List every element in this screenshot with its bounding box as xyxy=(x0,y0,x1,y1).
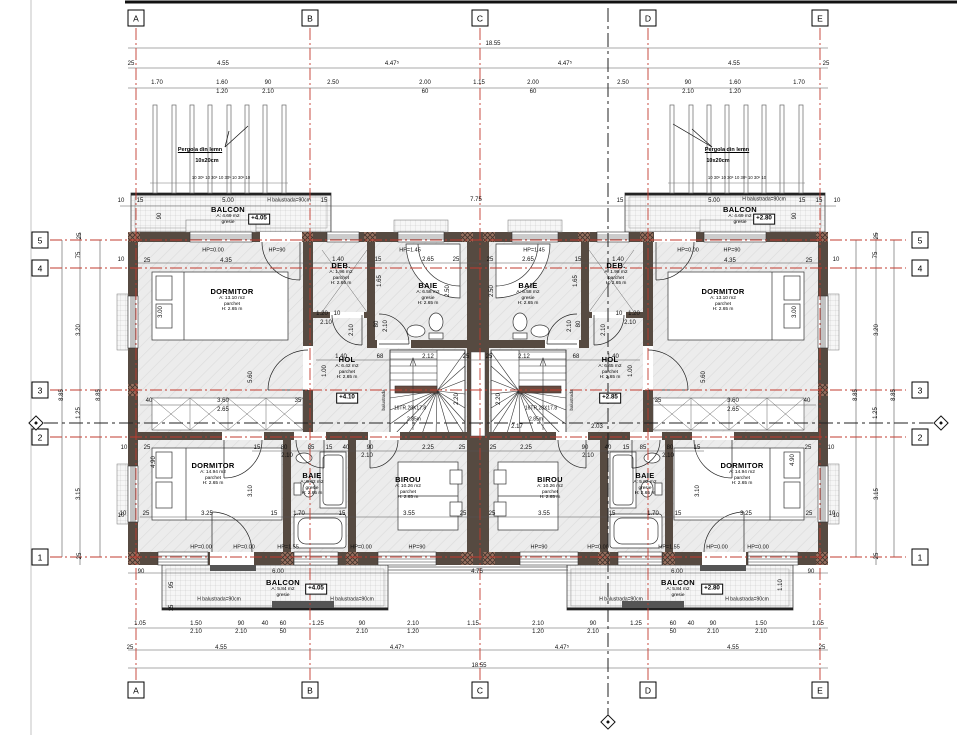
grid-marker-2: 2 xyxy=(912,429,929,446)
dim-label: 7.75 xyxy=(470,197,482,203)
dim-label: 25 xyxy=(127,645,134,651)
dim-label: H balustrada=90cm xyxy=(267,199,311,204)
dim-label: 15 xyxy=(137,198,144,204)
room-detail: A: 4.69 m2 xyxy=(211,214,245,219)
room-detail: H: 2.65 m xyxy=(395,495,421,500)
dim-label: 15 xyxy=(169,605,175,612)
dim-label: 40 xyxy=(688,621,695,627)
dim-label: HP=1.55 xyxy=(658,545,680,551)
grid-marker-B: B xyxy=(302,10,319,27)
room-label-balcon-top-left: BALCONA: 4.69 m2gresie xyxy=(211,206,245,225)
dim-label: H balustrada=90cm xyxy=(742,198,786,203)
dim-label: 2.10 xyxy=(532,621,544,627)
dim-label: 10 xyxy=(118,198,125,204)
dim-label: 2.10 xyxy=(407,621,419,627)
room-detail: A: 6.45 m2 xyxy=(598,364,621,369)
grid-marker-E: E xyxy=(812,10,829,27)
room-label-birou-right: BIROUA: 10.26 m2parchetH: 2.65 m xyxy=(537,476,563,500)
dim-label: 5.60 xyxy=(701,371,707,383)
room-detail: gresie xyxy=(211,220,245,225)
dim-label: H balustrada=90cm xyxy=(330,598,374,603)
dim-label: 15 xyxy=(617,198,624,204)
dim-label: 90 xyxy=(157,213,163,220)
dim-label: 90 xyxy=(265,80,272,86)
dim-label: 40 xyxy=(804,398,811,404)
dim-label: 2.10 xyxy=(356,629,368,635)
dim-label: 15 xyxy=(271,511,278,517)
dim-label: 2.20 xyxy=(496,393,502,405)
dim-label: 8.85 xyxy=(853,389,859,401)
dim-label: 2.10 xyxy=(281,453,293,459)
dim-label: 1.25 xyxy=(312,621,324,627)
dim-label: HP=1.45 xyxy=(399,248,421,254)
dim-label: 2.10 xyxy=(190,629,202,635)
room-detail: A: 5.02 m2 xyxy=(633,480,656,485)
grid-marker-A: A xyxy=(128,682,145,699)
dim-label: 1.20 xyxy=(216,89,228,95)
dim-label: 8.85 xyxy=(891,389,897,401)
dim-label: 2.10 xyxy=(235,629,247,635)
dim-label: 1.25 xyxy=(873,407,879,419)
dim-label: 2.17 xyxy=(511,424,523,430)
dim-label: 75 xyxy=(873,252,879,259)
dim-label: 15 xyxy=(694,445,701,451)
dim-label: 1.60 xyxy=(216,80,228,86)
dim-label: 1.00 xyxy=(628,365,634,377)
dim-label: 1.20 xyxy=(316,311,328,317)
dim-label: balustrada xyxy=(570,389,575,410)
dim-label: 2.10 xyxy=(707,629,719,635)
dim-label: 90 xyxy=(710,621,717,627)
dim-label: 80 xyxy=(667,445,674,451)
dim-label: 15 xyxy=(339,511,346,517)
dim-label: HP=1.45 xyxy=(523,248,545,254)
dim-label: 3.55 xyxy=(403,511,415,517)
section-marker xyxy=(600,714,616,730)
room-label-dormitor-bottom-right: DORMITORA: 14.94 m2parchetH: 2.65 m xyxy=(720,462,763,486)
dim-label: 60 xyxy=(422,89,429,95)
dim-label: 25 xyxy=(143,511,150,517)
grid-marker-4: 4 xyxy=(912,260,929,277)
dim-label: 90 xyxy=(238,621,245,627)
room-detail: A: 5.02 m2 xyxy=(300,480,323,485)
room-label-dormitor-top-right: DORMITORA: 13.10 m2parchetH: 2.65 m xyxy=(701,288,744,312)
grid-marker-D: D xyxy=(640,682,657,699)
dim-label: 3.25 xyxy=(201,511,213,517)
room-detail: gresie xyxy=(661,593,695,598)
dim-label: 5.00 xyxy=(222,198,234,204)
room-label-deb-right: DEB.A: 1.96 m2parchetH: 2.65 m xyxy=(604,262,627,286)
room-label-baie-top-left: BAIEA: 6.58 m2gresieH: 2.65 m xyxy=(416,282,439,306)
dim-label: 6.00 xyxy=(272,569,284,575)
dim-label: 25 xyxy=(874,553,880,560)
dim-label: HP=0.00 xyxy=(350,545,372,551)
grid-marker-3: 3 xyxy=(912,382,929,399)
dim-label: HP=0.00 xyxy=(747,545,769,551)
room-detail: H: 2.65 m xyxy=(329,281,352,286)
dim-label: 10 xyxy=(828,445,835,451)
dim-label: 90 xyxy=(138,569,145,575)
room-detail: gresie xyxy=(266,593,300,598)
grid-marker-C: C xyxy=(472,682,489,699)
dim-label: 10 xyxy=(833,257,840,263)
dim-label: 2.12 xyxy=(422,354,434,360)
dim-label: 4.55 xyxy=(727,645,739,651)
dim-label: 90 xyxy=(808,569,815,575)
dim-label: 1.20 xyxy=(407,629,419,635)
dim-label: 80 xyxy=(576,321,582,328)
room-detail: H: 2.65 m xyxy=(633,491,656,496)
room-label-hol-left: HOLA: 6.42 m2parchetH: 2.65 m xyxy=(335,356,358,380)
dim-label: 15 xyxy=(609,511,616,517)
dim-label: 25 xyxy=(490,445,497,451)
dim-label: 2.10 xyxy=(383,320,389,332)
room-detail: A: 10.26 m2 xyxy=(537,484,563,489)
dim-label: 15 xyxy=(675,511,682,517)
dim-label: 4.75 xyxy=(471,569,483,575)
dim-label: 1.70 xyxy=(151,80,163,86)
dim-label: 25 xyxy=(823,61,830,67)
room-label-balcon-top-right: BALCONA: 4.69 m2gresie xyxy=(723,206,757,225)
dim-label: 95 xyxy=(169,582,175,589)
dim-label: 25 xyxy=(487,257,494,263)
room-detail: A: 1.96 m2 xyxy=(329,270,352,275)
dim-label: 2.10 xyxy=(262,89,274,95)
dim-label: 2.03 xyxy=(591,424,603,430)
dim-label: 40 xyxy=(262,621,269,627)
dim-label: 90 xyxy=(359,621,366,627)
dim-label: 90 xyxy=(367,445,374,451)
dim-label: 4.35 xyxy=(724,258,736,264)
room-label-deb-left: DEB.A: 1.96 m2parchetH: 2.65 m xyxy=(329,262,352,286)
section-marker-dot xyxy=(939,420,943,424)
dim-label: 4.47⁵ xyxy=(558,61,572,67)
dim-label: 2.25 xyxy=(520,445,532,451)
dim-label: 68 xyxy=(377,354,384,360)
dim-label: 4.47⁵ xyxy=(555,645,569,651)
dim-label: 3.20 xyxy=(874,324,880,336)
dim-label: 10 30⁵ 10 30⁵ 10 30⁵ 10 30⁵ 10 xyxy=(708,176,766,180)
dim-label: 50 xyxy=(670,629,677,635)
section-marker xyxy=(933,415,949,431)
dim-label: 2.85m xyxy=(407,418,421,423)
room-detail: A: 5.84 m2 xyxy=(266,587,300,592)
grid-marker-4: 4 xyxy=(32,260,49,277)
room-detail: A: 5.84 m2 xyxy=(661,587,695,592)
room-label-dormitor-top-left: DORMITORA: 13.10 m2parchetH: 2.65 m xyxy=(210,288,253,312)
dim-label: 1.05 xyxy=(812,621,824,627)
dim-label: 1.65 xyxy=(377,275,383,287)
dim-label: 85 xyxy=(308,445,315,451)
room-label-balcon-bottom-right: BALCONA: 5.84 m2gresie xyxy=(661,579,695,598)
dim-label: 1.60 xyxy=(729,80,741,86)
grid-marker-2: 2 xyxy=(32,429,49,446)
dim-label: HP=90 xyxy=(724,248,741,254)
dim-label: 2.85m xyxy=(529,418,543,423)
dim-label: 10 xyxy=(118,513,125,519)
dim-label: 15 xyxy=(254,445,261,451)
room-detail: A: 4.69 m2 xyxy=(723,214,757,219)
dim-label: 90 xyxy=(792,213,798,220)
dim-label: 25 xyxy=(486,354,493,360)
room-detail: H: 2.65 m xyxy=(604,281,627,286)
room-label-balcon-bottom-left: BALCONA: 5.84 m2gresie xyxy=(266,579,300,598)
dim-label: 15 xyxy=(575,257,582,263)
room-label-baie-top-right: BAIEA: 6.58 m2gresieH: 2.65 m xyxy=(516,282,539,306)
dim-label: HP=0.00 xyxy=(233,545,255,551)
dim-label: 2.25 xyxy=(422,445,434,451)
grid-marker-C: C xyxy=(472,10,489,27)
grid-marker-B: B xyxy=(302,682,319,699)
dim-label: 3.10 xyxy=(695,485,701,497)
dim-label: 2.10 xyxy=(567,320,573,332)
dim-label: 40 xyxy=(146,398,153,404)
dim-label: 35 xyxy=(295,398,302,404)
dim-label: 75 xyxy=(76,252,82,259)
dim-label: HP=0.00 xyxy=(190,545,212,551)
dim-label: 2.20 xyxy=(454,393,460,405)
grid-marker-1: 1 xyxy=(912,549,929,566)
grid-marker-3: 3 xyxy=(32,382,49,399)
dim-label: 18.55 xyxy=(471,663,486,669)
dim-label: HP=90 xyxy=(409,545,426,551)
dim-label: 1.20 xyxy=(628,311,640,317)
dim-label: 80 xyxy=(281,445,288,451)
elevation-marker: +4.05 xyxy=(248,214,270,225)
grid-marker-A: A xyxy=(128,10,145,27)
dim-label: 25 xyxy=(819,645,826,651)
dim-label: balustrada xyxy=(382,389,387,410)
room-detail: H: 2.65 m xyxy=(300,491,323,496)
dim-label: 3.15 xyxy=(76,488,82,500)
dim-label: 25 xyxy=(874,233,880,240)
dim-label: HP=0.00 xyxy=(677,248,699,254)
dim-label: 60 xyxy=(530,89,537,95)
dim-label: 2.10 xyxy=(624,320,636,326)
room-detail: H: 2.65 m xyxy=(416,301,439,306)
dim-label: 25 xyxy=(459,445,466,451)
dim-label: 25 xyxy=(806,258,813,264)
dim-label: 1.50 xyxy=(190,621,202,627)
grid-marker-1: 1 xyxy=(32,549,49,566)
dim-label: 90 xyxy=(590,621,597,627)
dim-label: 80 xyxy=(374,321,380,328)
room-detail: H: 2.65 m xyxy=(537,495,563,500)
dim-label: 35 xyxy=(655,398,662,404)
room-label-birou-left: BIROUA: 10.26 m2parchetH: 2.65 m xyxy=(395,476,421,500)
annotation-layer: 18.55254.554.47⁵4.47⁵4.55251.701.601.209… xyxy=(0,0,957,735)
grid-marker-5: 5 xyxy=(32,232,49,249)
dim-label: 2.12 xyxy=(518,354,530,360)
room-detail: A: 6.58 m2 xyxy=(416,290,439,295)
dim-label: 1.70 xyxy=(647,511,659,517)
room-detail: A: 10.26 m2 xyxy=(395,484,421,489)
dim-label: 3.55 xyxy=(538,511,550,517)
room-detail: A: 6.42 m2 xyxy=(335,364,358,369)
dim-label: 4.47⁵ xyxy=(385,61,399,67)
dim-label: H balustrada=90cm xyxy=(197,598,241,603)
dim-label: 25 xyxy=(460,511,467,517)
dim-label: HP=90 xyxy=(269,248,286,254)
dim-label: 1.50 xyxy=(755,621,767,627)
dim-label: 3.60 xyxy=(727,398,739,404)
dim-label: 4.47⁵ xyxy=(390,645,404,651)
dim-label: 2.50 xyxy=(445,285,451,297)
dim-label: 2.10 xyxy=(662,453,674,459)
dim-label: 6.00 xyxy=(671,569,683,575)
dim-label: 1.05 xyxy=(134,621,146,627)
dim-label: 2.10 xyxy=(349,324,355,336)
dim-label: 2.65 xyxy=(522,257,534,263)
dim-label: 25 xyxy=(77,233,83,240)
elevation-marker: +4.05 xyxy=(305,584,327,595)
dim-label: 25 xyxy=(805,445,812,451)
room-detail: A: 1.96 m2 xyxy=(604,270,627,275)
dim-label: 2.50 xyxy=(327,80,339,86)
dim-label: 3.00 xyxy=(158,306,164,318)
dim-label: HP=0.00 xyxy=(202,248,224,254)
dim-label: 1.25 xyxy=(630,621,642,627)
dim-label: 10 xyxy=(118,257,125,263)
dim-label: H balustrada=90cm xyxy=(725,598,769,603)
note-label: 10x20cm xyxy=(706,158,729,164)
elevation-marker: +2.80 xyxy=(753,214,775,225)
dim-label: 3.60 xyxy=(217,398,229,404)
room-detail: gresie xyxy=(723,220,757,225)
dim-label: 2.10 xyxy=(587,629,599,635)
dim-label: 2.50 xyxy=(617,80,629,86)
room-label-baie-bottom-right: BAIEA: 5.02 m2gresieH: 2.65 m xyxy=(633,472,656,496)
dim-label: 10 30⁵ 10 30⁵ 10 30⁵ 10 30⁵ 10 xyxy=(192,176,250,180)
dim-label: 10 xyxy=(833,513,840,519)
room-label-baie-bottom-left: BAIEA: 5.02 m2gresieH: 2.65 m xyxy=(300,472,323,496)
dim-label: 15 xyxy=(375,257,382,263)
room-detail: H: 2.65 m xyxy=(210,307,253,312)
dim-label: 2.10 xyxy=(601,324,607,336)
dim-label: 1.20 xyxy=(729,89,741,95)
dim-label: HP=0.00 xyxy=(587,545,609,551)
dim-label: HP=1.55 xyxy=(277,545,299,551)
note-label: Pergola din lemn xyxy=(705,147,749,153)
dim-label: 40 xyxy=(605,445,612,451)
dim-label: H balustrada=90cm xyxy=(599,598,643,603)
dim-label: 90 xyxy=(582,445,589,451)
dim-label: 15 xyxy=(799,198,806,204)
dim-label: 4.90 xyxy=(790,454,796,466)
dim-label: 2.65 xyxy=(217,407,229,413)
dim-label: 4.35 xyxy=(220,258,232,264)
section-marker-dot xyxy=(606,719,610,723)
dim-label: 8.85 xyxy=(96,389,102,401)
dim-label: 15 xyxy=(816,198,823,204)
dim-label: 1.00 xyxy=(322,365,328,377)
dim-label: 1.70 xyxy=(793,80,805,86)
section-marker-dot xyxy=(34,420,38,424)
dim-label: 25 xyxy=(489,511,496,517)
dim-label: 1.10 xyxy=(778,579,784,591)
dim-label: 90 xyxy=(685,80,692,86)
dim-label: 4.90 xyxy=(151,456,157,468)
dim-label: 4.55 xyxy=(728,61,740,67)
room-detail: H: 2.65 m xyxy=(191,481,234,486)
elevation-marker: +2.85 xyxy=(599,393,621,404)
dim-label: 2.50 xyxy=(489,285,495,297)
dim-label: 25 xyxy=(806,511,813,517)
dim-label: 5.60 xyxy=(248,371,254,383)
dim-label: 2.65 xyxy=(727,407,739,413)
dim-label: 1.15 xyxy=(467,621,479,627)
dim-label: 3.15 xyxy=(874,488,880,500)
dim-label: 2.00 xyxy=(419,80,431,86)
dim-label: 8.85 xyxy=(59,389,65,401)
dim-label: 15 xyxy=(321,198,328,204)
dim-label: 2.10 xyxy=(755,629,767,635)
dim-label: 2.10 xyxy=(682,89,694,95)
room-detail: H: 2.65 m xyxy=(701,307,744,312)
dim-label: 3.10 xyxy=(248,485,254,497)
dim-label: 2.00 xyxy=(527,80,539,86)
dim-label: 2.10 xyxy=(582,453,594,459)
dim-label: HP=0.00 xyxy=(706,545,728,551)
dim-label: 10 xyxy=(616,311,623,317)
grid-marker-5: 5 xyxy=(912,232,929,249)
dim-label: 15 xyxy=(326,445,333,451)
note-label: 10x20cm xyxy=(195,158,218,164)
room-label-hol-right: HOLA: 6.45 m2parchetH: 2.65 m xyxy=(598,356,621,380)
dim-label: 25 xyxy=(463,354,470,360)
room-detail: H: 2.65 m xyxy=(720,481,763,486)
dim-label: 10 xyxy=(121,445,128,451)
dim-label: 1.65 xyxy=(573,275,579,287)
dim-label: 85 xyxy=(640,445,647,451)
dim-label: 25 xyxy=(144,445,151,451)
dim-label: 2.10 xyxy=(361,453,373,459)
dim-label: 50 xyxy=(280,629,287,635)
dim-label: 68 xyxy=(573,354,580,360)
dim-label: 40 xyxy=(343,445,350,451)
dim-label: 2.10 xyxy=(320,320,332,326)
dim-label: 3.00 xyxy=(792,306,798,318)
dim-label: 16TR.28X17.8 xyxy=(394,407,426,412)
dim-label: 1.25 xyxy=(76,407,82,419)
dim-label: HP=90 xyxy=(531,545,548,551)
dim-label: 60 xyxy=(280,621,287,627)
room-detail: H: 2.65 m xyxy=(598,375,621,380)
dim-label: 25 xyxy=(128,61,135,67)
dim-label: 4.55 xyxy=(215,645,227,651)
dim-label: 25 xyxy=(453,257,460,263)
room-detail: H: 2.65 m xyxy=(335,375,358,380)
dim-label: 3.25 xyxy=(740,511,752,517)
room-label-dormitor-bottom-left: DORMITORA: 14.94 m2parchetH: 2.65 m xyxy=(191,462,234,486)
dim-label: 16TR.28X17.8 xyxy=(525,407,557,412)
room-detail: H: 2.65 m xyxy=(516,301,539,306)
elevation-marker: +4.10 xyxy=(336,393,358,404)
room-detail: A: 6.58 m2 xyxy=(516,290,539,295)
dim-label: 5.00 xyxy=(708,198,720,204)
dim-label: 1.20 xyxy=(532,629,544,635)
dim-label: 3.20 xyxy=(76,324,82,336)
dim-label: 25 xyxy=(144,258,151,264)
grid-marker-E: E xyxy=(812,682,829,699)
dim-label: 10 xyxy=(834,198,841,204)
dim-label: 2.65 xyxy=(422,257,434,263)
dim-label: 25 xyxy=(77,553,83,560)
dim-label: 60 xyxy=(670,621,677,627)
dim-label: 18.55 xyxy=(485,41,500,47)
grid-marker-D: D xyxy=(640,10,657,27)
dim-label: 1.15 xyxy=(473,80,485,86)
